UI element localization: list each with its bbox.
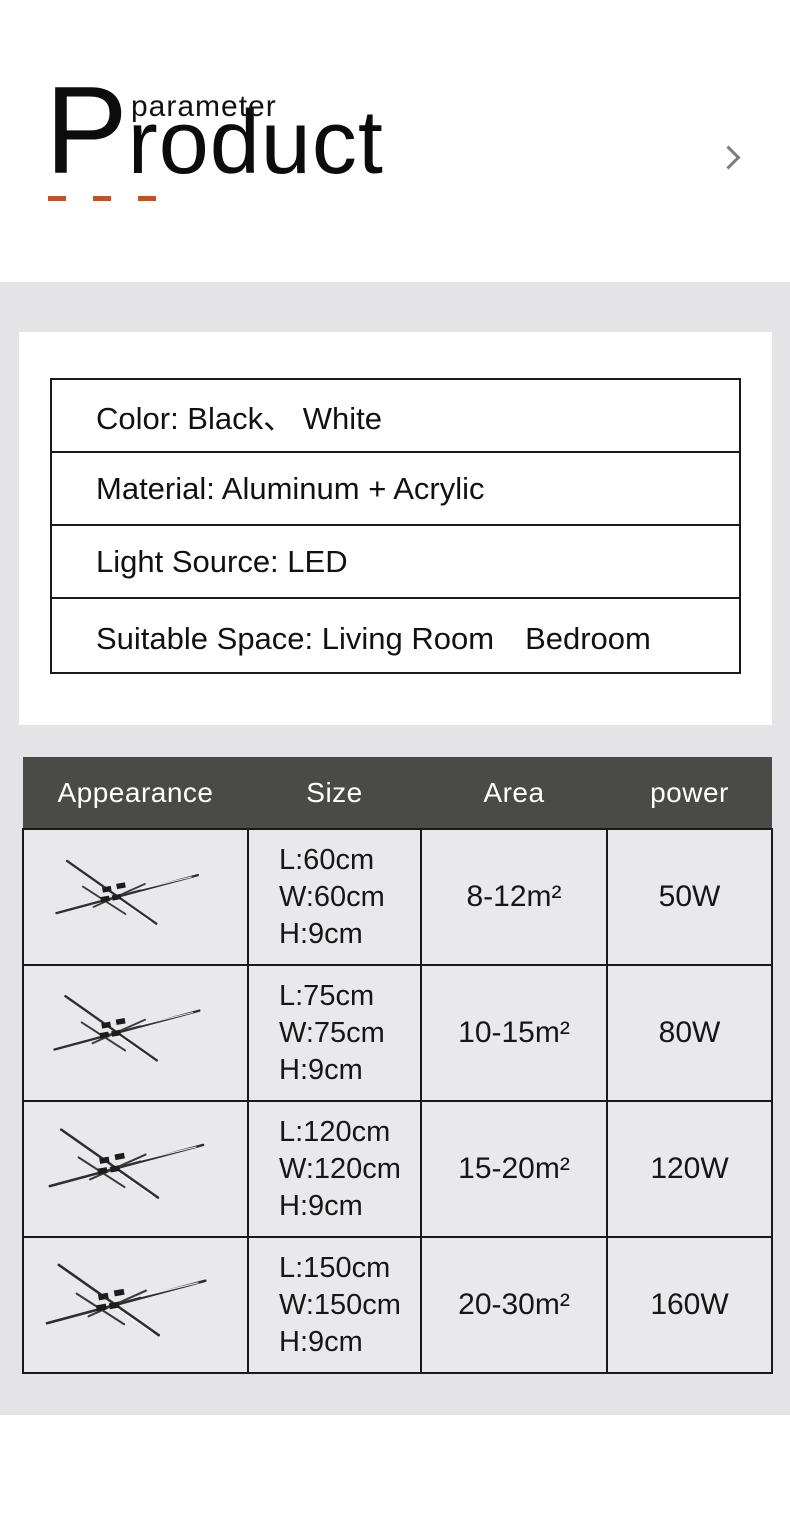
ceiling-lamp-icon <box>45 1121 227 1217</box>
size-line: L:150cm <box>279 1250 420 1287</box>
power-cell: 50W <box>607 829 772 965</box>
area-cell: 8-12m² <box>421 829 607 965</box>
accent-dash <box>138 196 156 201</box>
size-cell: L:120cm W:120cm H:9cm <box>248 1101 421 1237</box>
size-cell: L:60cm W:60cm H:9cm <box>248 829 421 965</box>
spec-row-light-source: Light Source: LED <box>52 526 739 599</box>
ceiling-lamp-icon <box>52 853 220 941</box>
spec-table: Color: Black、 White Material: Aluminum +… <box>50 378 741 674</box>
spec-row-color: Color: Black、 White <box>52 380 739 453</box>
size-line: H:9cm <box>279 916 420 953</box>
col-header-area: Area <box>421 757 607 829</box>
section-header: Product parameter <box>0 0 790 282</box>
area-cell: 20-30m² <box>421 1237 607 1373</box>
size-cell: L:150cm W:150cm H:9cm <box>248 1237 421 1373</box>
area-cell: 10-15m² <box>421 965 607 1101</box>
appearance-cell <box>23 965 248 1101</box>
bottom-spacer <box>0 1415 790 1536</box>
appearance-cell <box>23 829 248 965</box>
title-initial: P <box>45 62 128 200</box>
chevron-right-icon[interactable] <box>716 145 740 169</box>
size-line: W:60cm <box>279 879 420 916</box>
size-line: W:150cm <box>279 1287 420 1324</box>
size-line: W:75cm <box>279 1015 420 1052</box>
col-header-power: power <box>607 757 772 829</box>
appearance-cell <box>23 1101 248 1237</box>
size-cell: L:75cm W:75cm H:9cm <box>248 965 421 1101</box>
ceiling-lamp-icon <box>42 1256 230 1355</box>
accent-dash <box>48 196 66 201</box>
content-band: Color: Black、 White Material: Aluminum +… <box>0 282 790 1415</box>
size-table-row: L:120cm W:120cm H:9cm 15-20m² 120W <box>23 1101 772 1237</box>
title-accent-dashes <box>48 196 156 201</box>
power-cell: 160W <box>607 1237 772 1373</box>
col-header-size: Size <box>248 757 421 829</box>
size-table-row: L:75cm W:75cm H:9cm 10-15m² 80W <box>23 965 772 1101</box>
size-line: W:120cm <box>279 1151 420 1188</box>
size-line: H:9cm <box>279 1188 420 1225</box>
size-line: H:9cm <box>279 1324 420 1361</box>
spec-card: Color: Black、 White Material: Aluminum +… <box>19 332 772 725</box>
area-cell: 15-20m² <box>421 1101 607 1237</box>
size-table-row: L:150cm W:150cm H:9cm 20-30m² 160W <box>23 1237 772 1373</box>
power-cell: 80W <box>607 965 772 1101</box>
size-line: L:60cm <box>279 842 420 879</box>
size-table-header-row: Appearance Size Area power <box>23 757 772 829</box>
size-table-row: L:60cm W:60cm H:9cm 8-12m² 50W <box>23 829 772 965</box>
col-header-appearance: Appearance <box>23 757 248 829</box>
spec-row-material: Material: Aluminum + Acrylic <box>52 453 739 526</box>
size-line: H:9cm <box>279 1052 420 1089</box>
size-line: L:120cm <box>279 1114 420 1151</box>
spec-row-suitable-space: Suitable Space: Living Room Bedroom <box>52 599 739 672</box>
spec-text: Light Source: LED <box>96 544 348 580</box>
page-title: Product parameter <box>45 66 384 208</box>
title-superscript: parameter <box>131 90 277 124</box>
power-cell: 120W <box>607 1101 772 1237</box>
spec-text: Suitable Space: Living Room Bedroom <box>96 613 651 658</box>
accent-dash <box>93 196 111 201</box>
ceiling-lamp-icon <box>50 988 222 1079</box>
spec-text: Color: Black、 White <box>96 393 382 438</box>
spec-text: Material: Aluminum + Acrylic <box>96 471 484 507</box>
size-line: L:75cm <box>279 978 420 1015</box>
appearance-cell <box>23 1237 248 1373</box>
size-table: Appearance Size Area power <box>22 757 773 1374</box>
